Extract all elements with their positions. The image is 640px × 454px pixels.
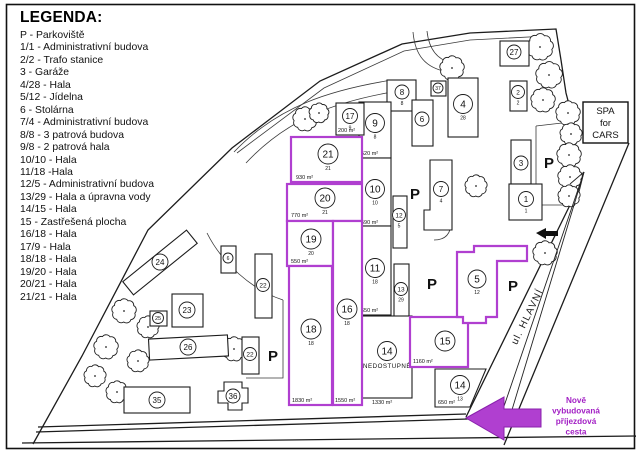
legend-item: 2/2 - Trafo stanice bbox=[20, 55, 154, 67]
building-number: 7 bbox=[439, 185, 444, 194]
legend-item: 12/5 - Administrativní budova bbox=[20, 179, 154, 191]
building-area-label: 1550 m² bbox=[335, 398, 355, 404]
building-sub-number: 29 bbox=[398, 298, 404, 304]
building-sub-number: 20 bbox=[308, 251, 314, 257]
building-number: 16 bbox=[341, 305, 353, 316]
building-area-label: 1330 m² bbox=[372, 400, 392, 406]
building-sub-number: 4 bbox=[440, 199, 443, 205]
building-area-label: 1830 m² bbox=[292, 398, 312, 404]
building-20-highlighted: 2021770 m² bbox=[287, 184, 362, 221]
building-sub-number: 21 bbox=[322, 210, 328, 216]
building-number: 6 bbox=[420, 115, 425, 124]
building-area-label: 650 m² bbox=[438, 400, 455, 406]
building-36: 36 bbox=[218, 382, 248, 410]
building-area-label: 200 m² bbox=[338, 128, 355, 134]
building-number: 10 bbox=[369, 185, 381, 196]
tree-center-dot bbox=[233, 348, 235, 350]
building-37: 37 bbox=[431, 81, 446, 96]
tree-center-dot bbox=[544, 252, 546, 254]
building-sub-number: 8 bbox=[374, 135, 377, 141]
building-sub-number: 8 bbox=[401, 101, 404, 107]
building-number: 3 bbox=[519, 159, 524, 168]
building-number: 14 bbox=[381, 347, 393, 358]
site-boundary-line bbox=[22, 436, 636, 443]
building-area-label: 550 m² bbox=[291, 259, 308, 265]
building-number: 13 bbox=[397, 286, 405, 293]
legend-item: 5/12 - Jídelna bbox=[20, 92, 154, 104]
building-2: 22 bbox=[510, 81, 527, 111]
building-number: 5 bbox=[474, 275, 480, 286]
building-4: 428 bbox=[448, 78, 478, 137]
building-area-label: 930 m² bbox=[296, 175, 313, 181]
building-number: 24 bbox=[156, 258, 165, 267]
tree-center-dot bbox=[567, 112, 569, 114]
building-area-label: 650 m² bbox=[361, 308, 378, 314]
parking-label: P bbox=[410, 186, 420, 203]
building-1: 11 bbox=[509, 184, 542, 220]
new-road-note: cesta bbox=[566, 428, 587, 437]
legend-item: P - Parkoviště bbox=[20, 30, 154, 42]
building-3: 3 bbox=[511, 140, 531, 184]
tree-center-dot bbox=[94, 375, 96, 377]
tree-center-dot bbox=[568, 154, 570, 156]
building-number: 23 bbox=[183, 306, 192, 315]
legend-item: 8/8 - 3 patrová budova bbox=[20, 130, 154, 142]
building-12: 125 bbox=[393, 196, 408, 248]
building-number: 17 bbox=[346, 112, 355, 121]
site-plan-page: 272242888698520 m²1010590 m²1118650 m²13… bbox=[0, 0, 640, 454]
building-number: 8 bbox=[400, 88, 405, 97]
building-15-highlighted: 151160 m² bbox=[410, 317, 468, 367]
legend-item: 4/28 - Hala bbox=[20, 80, 154, 92]
new-road-note: vybudovaná bbox=[552, 407, 600, 416]
building-outline bbox=[393, 196, 407, 248]
building-number: 9 bbox=[372, 119, 378, 130]
building-number: 20 bbox=[319, 194, 331, 205]
building-sub-number: 5 bbox=[398, 224, 401, 230]
parking-label: P bbox=[508, 278, 518, 295]
legend-item: 3 - Garáže bbox=[20, 67, 154, 79]
building-number: 2 bbox=[516, 89, 520, 96]
building-area-label: 1160 m² bbox=[413, 359, 433, 365]
legend-panel: LEGENDA: P - Parkoviště1/1 - Administrat… bbox=[20, 9, 154, 304]
building-sub-number: 10 bbox=[372, 201, 378, 207]
building-number: 15 bbox=[439, 337, 451, 348]
legend-item: 7/4 - Administrativní budova bbox=[20, 117, 154, 129]
tree-center-dot bbox=[116, 391, 118, 393]
tree-center-dot bbox=[569, 176, 571, 178]
building-16-highlighted: 16181550 m² bbox=[333, 221, 362, 405]
nedostupne-label: NEDOSTUPNÉ bbox=[363, 363, 411, 370]
tree-center-dot bbox=[123, 310, 125, 312]
legend-item: 16/18 - Hala bbox=[20, 229, 154, 241]
tree-center-dot bbox=[568, 195, 570, 197]
new-road-note: Nově bbox=[566, 396, 586, 405]
building-number: 25 bbox=[155, 316, 161, 322]
building-22: 22 bbox=[255, 254, 272, 318]
legend-item: 21/21 - Hala bbox=[20, 292, 154, 304]
building-11: 1118650 m² bbox=[359, 226, 391, 315]
building-number: 22 bbox=[259, 282, 267, 289]
legend-item: 18/18 - Hala bbox=[20, 254, 154, 266]
building-number: 4 bbox=[460, 100, 466, 111]
new-road-arrow-icon bbox=[466, 397, 541, 440]
building-7: 74 bbox=[424, 160, 452, 230]
building-sub-number: 2 bbox=[517, 101, 520, 107]
building-area-label: 520 m² bbox=[361, 151, 378, 157]
legend-item: 13/29 - Hala a úpravna vody bbox=[20, 192, 154, 204]
tree-center-dot bbox=[304, 118, 306, 120]
legend-title: LEGENDA: bbox=[20, 9, 154, 27]
building-14: 1413650 m² bbox=[435, 369, 486, 407]
legend-item: 11/18 -Hala bbox=[20, 167, 154, 179]
tree-center-dot bbox=[147, 326, 149, 328]
parking-label: P bbox=[427, 276, 437, 293]
building-17: 179200 m² bbox=[336, 103, 364, 135]
building-6: 6 bbox=[221, 246, 236, 273]
building-18-highlighted: 18181830 m² bbox=[289, 266, 332, 405]
new-road-note: příjezdová bbox=[556, 417, 597, 426]
building-13: 1329 bbox=[394, 264, 409, 320]
building-sub-number: 12 bbox=[474, 290, 480, 296]
legend-item: 15 - Zastřešená plocha bbox=[20, 217, 154, 229]
building-number: 19 bbox=[305, 235, 317, 246]
building-number: 12 bbox=[395, 212, 403, 219]
tree-center-dot bbox=[542, 99, 544, 101]
legend-list: P - Parkoviště1/1 - Administrativní budo… bbox=[20, 30, 154, 304]
legend-item: 1/1 - Administrativní budova bbox=[20, 42, 154, 54]
building-27: 27 bbox=[500, 41, 529, 66]
building-22: 22 bbox=[242, 337, 259, 374]
building-23: 23 bbox=[172, 294, 203, 327]
building-number: 22 bbox=[246, 351, 254, 358]
building-26: 26 bbox=[149, 335, 229, 360]
parking-label: P bbox=[268, 348, 278, 365]
building-21-highlighted: 2121930 m² bbox=[291, 137, 362, 182]
building-number: 14 bbox=[454, 381, 466, 392]
building-number: 1 bbox=[524, 195, 529, 204]
tree-center-dot bbox=[570, 133, 572, 135]
spa-box-text: for bbox=[600, 118, 611, 129]
building-number: 21 bbox=[322, 150, 334, 161]
legend-item: 17/9 - Hala bbox=[20, 242, 154, 254]
tree-center-dot bbox=[539, 46, 541, 48]
building-sub-number: 1 bbox=[525, 209, 528, 215]
legend-item: 19/20 - Hala bbox=[20, 267, 154, 279]
building-area-label: 770 m² bbox=[291, 213, 308, 219]
building-number: 37 bbox=[435, 86, 441, 92]
building-area-label: 590 m² bbox=[361, 220, 378, 226]
building-sub-number: 18 bbox=[308, 341, 314, 347]
building-number: 26 bbox=[184, 343, 193, 352]
tree-center-dot bbox=[475, 185, 477, 187]
building-sub-number: 28 bbox=[460, 116, 466, 122]
legend-item: 10/10 - Hala bbox=[20, 155, 154, 167]
building-35: 35 bbox=[124, 387, 190, 413]
legend-item: 14/15 - Hala bbox=[20, 204, 154, 216]
building-25: 25 bbox=[150, 311, 167, 326]
building-sub-number: 18 bbox=[344, 321, 350, 327]
tree-center-dot bbox=[105, 346, 107, 348]
building-6: 6 bbox=[412, 100, 433, 146]
building-10: 1010590 m² bbox=[359, 158, 391, 226]
internal-road-line bbox=[536, 123, 562, 126]
building-number: 18 bbox=[305, 325, 317, 336]
tree-center-dot bbox=[318, 112, 320, 114]
tree-center-dot bbox=[137, 360, 139, 362]
legend-item: 6 - Stolárna bbox=[20, 105, 154, 117]
building-sub-number: 18 bbox=[372, 280, 378, 286]
building-number: 35 bbox=[153, 396, 162, 405]
legend-item: 9/8 - 2 patrová hala bbox=[20, 142, 154, 154]
tree-center-dot bbox=[451, 67, 453, 69]
building-number: 27 bbox=[510, 48, 519, 57]
building-number: 36 bbox=[229, 392, 238, 401]
building-14: 141330 m²NEDOSTUPNÉ bbox=[362, 316, 412, 406]
spa-box-text: SPA bbox=[596, 106, 615, 117]
tree-center-dot bbox=[548, 74, 550, 76]
parking-label: P bbox=[544, 155, 554, 172]
spa-box-text: CARS bbox=[592, 130, 618, 141]
building-number: 11 bbox=[370, 264, 381, 275]
building-sub-number: 21 bbox=[325, 166, 331, 172]
building-19-highlighted: 1920550 m² bbox=[287, 221, 333, 266]
legend-item: 20/21 - Hala bbox=[20, 279, 154, 291]
building-sub-number: 13 bbox=[457, 397, 463, 403]
building-number: 6 bbox=[227, 256, 230, 262]
